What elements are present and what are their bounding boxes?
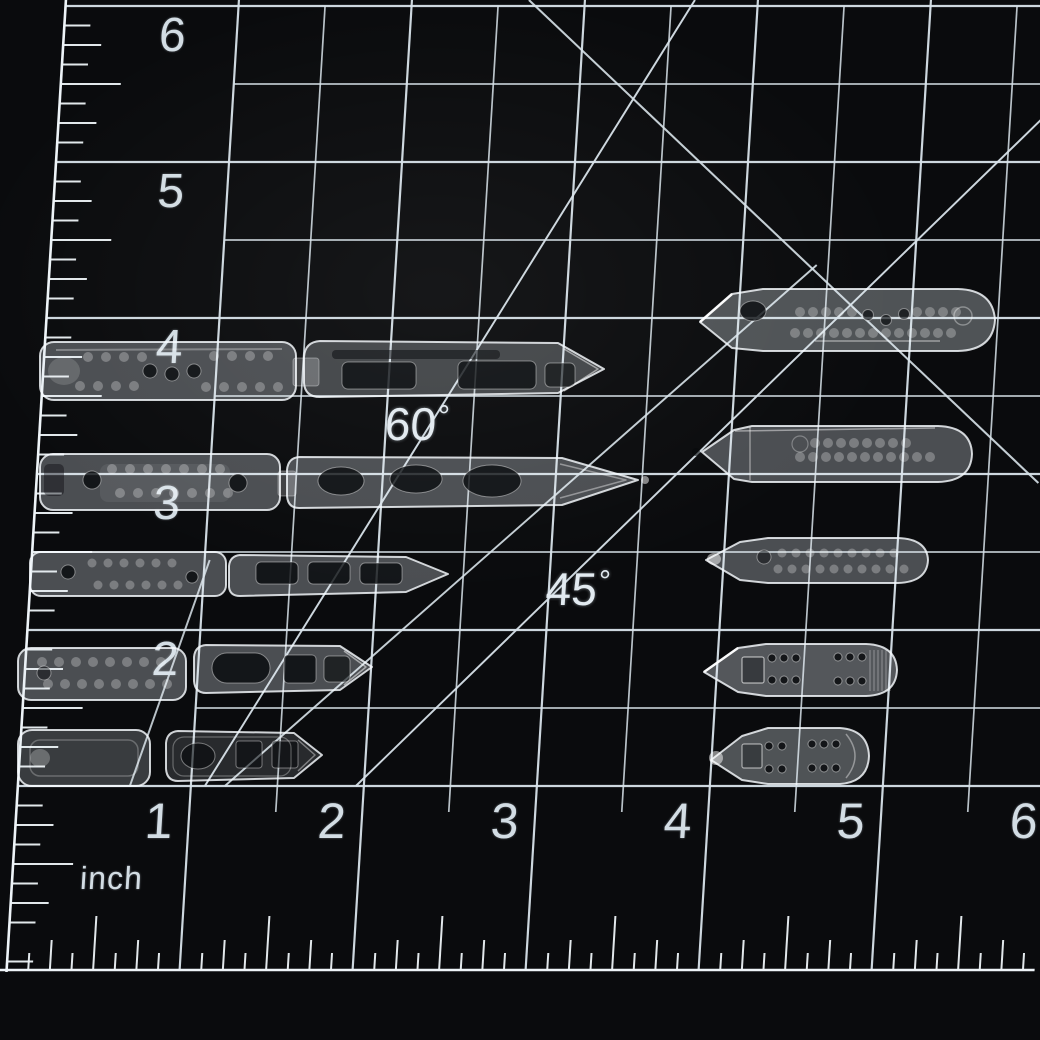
cutting-mat-photo: 6 5 4 3 2 1 2 3 4 5 6 inch 60° 45° xyxy=(0,0,1040,1040)
ship-hull-half-row2 xyxy=(40,454,280,510)
ship-hull-half-row5 xyxy=(18,730,150,786)
ship-deck-row2 xyxy=(278,457,649,508)
ship-deck-row4 xyxy=(194,645,372,693)
ship-hull-half-row3 xyxy=(30,552,226,596)
model-parts-layer xyxy=(0,0,1040,1040)
ship-hull-row5 xyxy=(709,728,869,784)
ship-hull-row4 xyxy=(704,644,897,696)
ship-deck-row3 xyxy=(229,555,448,596)
ship-hull-row1 xyxy=(700,289,995,351)
ship-hull-half-row1 xyxy=(40,342,296,400)
ship-deck-row5 xyxy=(166,731,322,781)
ship-hull-row2 xyxy=(692,426,972,482)
ship-hull-half-row4 xyxy=(18,648,186,700)
ship-deck-row1 xyxy=(293,341,604,397)
ship-hull-row3 xyxy=(706,538,928,583)
